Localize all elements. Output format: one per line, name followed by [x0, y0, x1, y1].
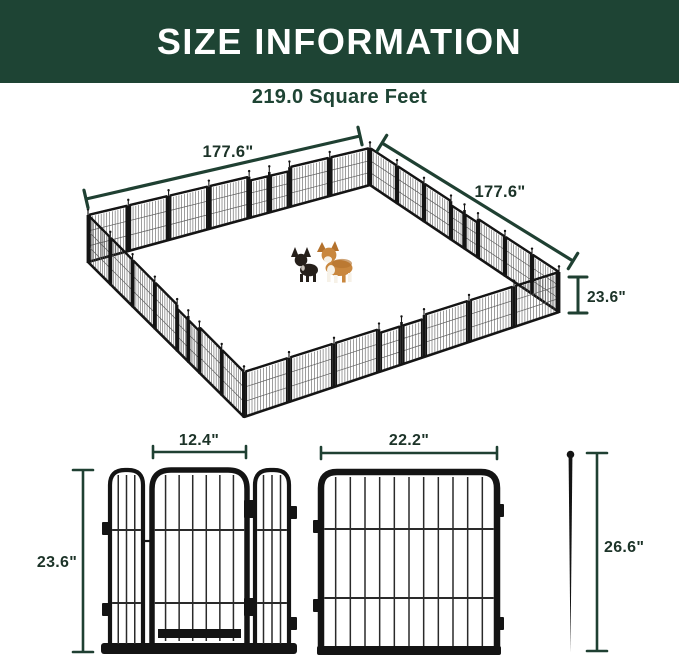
door-panel-width-label: 12.4"	[179, 432, 219, 449]
size-information-page: SIZE INFORMATION 219.0 Square Feet 177.6…	[0, 0, 679, 656]
pen-left-side-dimension-label: 177.6"	[203, 143, 254, 161]
pen-height-dimension-label: 23.6"	[587, 289, 626, 306]
door-panel-height-label: 23.6"	[37, 554, 77, 571]
dogs-illustration	[291, 241, 353, 283]
large-panel-width-label: 22.2"	[389, 432, 429, 449]
stake-height-label: 26.6"	[604, 539, 644, 556]
pen-right-side-dimension-label: 177.6"	[475, 183, 526, 201]
panel-detail-illustrations	[101, 451, 574, 655]
size-diagram: 177.6" 177.6" 23.6" 12.4" 23.6" 22.2" 26…	[0, 0, 679, 656]
